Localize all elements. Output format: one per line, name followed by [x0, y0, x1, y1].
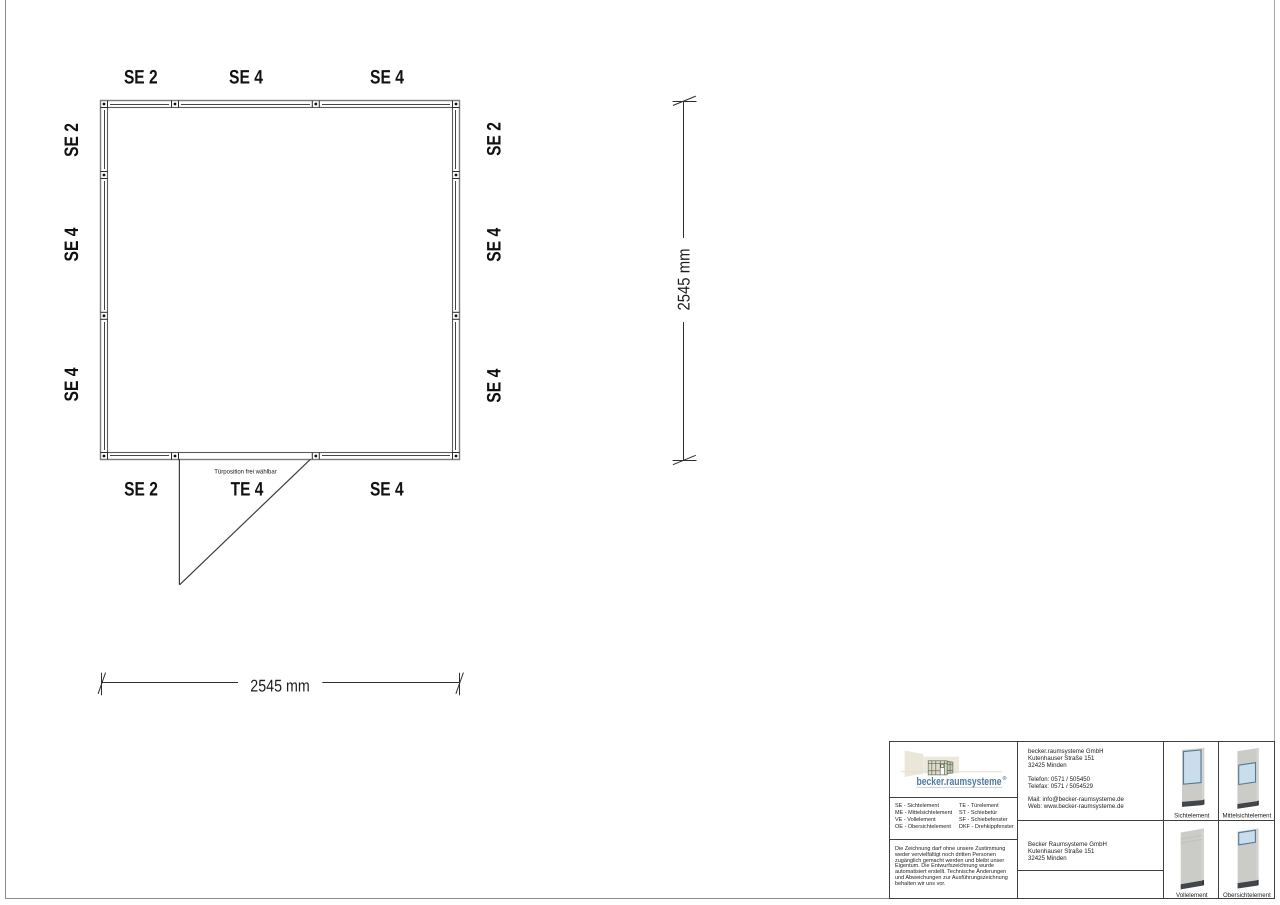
svg-text:Sichtelement: Sichtelement — [1174, 813, 1210, 820]
svg-text:®: ® — [1003, 775, 1007, 782]
svg-text:becker.raumsysteme: becker.raumsysteme — [917, 776, 1002, 788]
svg-text:Vollelement: Vollelement — [1176, 892, 1208, 898]
svg-text:SE 4: SE 4 — [484, 369, 506, 403]
svg-text:SE 4: SE 4 — [484, 228, 506, 262]
svg-text:SE 4: SE 4 — [370, 479, 404, 501]
svg-text:SE 2: SE 2 — [484, 122, 506, 156]
svg-text:SE 2: SE 2 — [124, 479, 158, 501]
svg-text:SE 4: SE 4 — [370, 67, 404, 89]
svg-text:SE 4: SE 4 — [61, 227, 83, 261]
svg-text:SE 4: SE 4 — [229, 67, 263, 89]
svg-text:Mittelsichtelement: Mittelsichtelement — [1223, 813, 1272, 820]
svg-text:2545 mm: 2545 mm — [674, 249, 693, 311]
svg-text:SE 4: SE 4 — [61, 367, 83, 401]
svg-text:SE 2: SE 2 — [61, 123, 83, 157]
svg-text:2545 mm: 2545 mm — [250, 676, 309, 695]
svg-text:Türposition frei wählbar: Türposition frei wählbar — [214, 468, 276, 475]
svg-text:Obersichtelement: Obersichtelement — [1223, 892, 1271, 898]
svg-text:TE 4: TE 4 — [231, 479, 264, 501]
svg-text:SE 2: SE 2 — [124, 67, 158, 89]
